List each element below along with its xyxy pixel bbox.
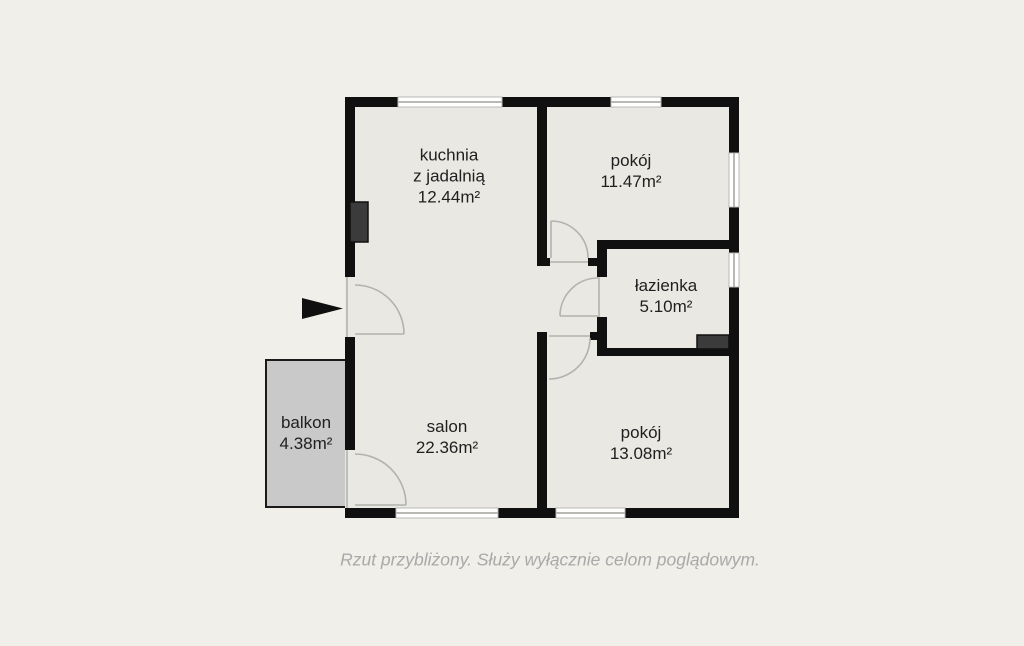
wall-segment	[729, 287, 739, 508]
wall-segment	[345, 508, 396, 518]
room-label-pokoj-dolny: pokój 13.08m²	[610, 422, 672, 464]
room-area: 11.47m²	[600, 171, 661, 192]
wall-segment	[502, 97, 611, 107]
room-area: 5.10m²	[635, 296, 697, 317]
wall-segment	[537, 258, 550, 266]
wall-segment	[729, 107, 739, 153]
room-name: z jadalnią	[413, 166, 485, 187]
bathroom-shaft	[697, 335, 729, 349]
wall-segment	[661, 97, 739, 107]
room-area: 13.08m²	[610, 443, 672, 464]
room-area: 4.38m²	[280, 433, 333, 454]
room-label-pokoj-gorny: pokój 11.47m²	[600, 150, 661, 192]
wall-segment	[345, 107, 355, 277]
disclaimer-caption: Rzut przybliżony. Służy wyłącznie celom …	[340, 550, 760, 571]
entrance-arrow-icon	[302, 298, 343, 319]
room-name: kuchnia	[413, 145, 485, 166]
wall-segment	[537, 332, 547, 508]
room-label-kuchnia: kuchnia z jadalnią 12.44m²	[413, 145, 485, 208]
kitchen-shaft	[350, 202, 368, 242]
room-label-lazienka: łazienka 5.10m²	[635, 275, 697, 317]
wall-segment	[345, 337, 355, 450]
room-label-balkon: balkon 4.38m²	[280, 412, 333, 454]
room-label-salon: salon 22.36m²	[416, 416, 478, 458]
wall-segment	[345, 97, 398, 107]
room-name: salon	[416, 416, 478, 437]
room-name: pokój	[610, 422, 672, 443]
wall-segment	[590, 332, 607, 340]
wall-segment	[537, 107, 547, 266]
wall-segment	[588, 258, 597, 266]
wall-segment	[597, 240, 739, 249]
floor-plan: kuchnia z jadalnią 12.44m² pokój 11.47m²…	[0, 0, 1024, 646]
room-name: łazienka	[635, 275, 697, 296]
wall-segment	[625, 508, 739, 518]
room-area: 12.44m²	[413, 187, 485, 208]
room-name: balkon	[280, 412, 333, 433]
wall-segment	[597, 249, 607, 277]
room-name: pokój	[600, 150, 661, 171]
wall-segment	[498, 508, 556, 518]
room-area: 22.36m²	[416, 437, 478, 458]
